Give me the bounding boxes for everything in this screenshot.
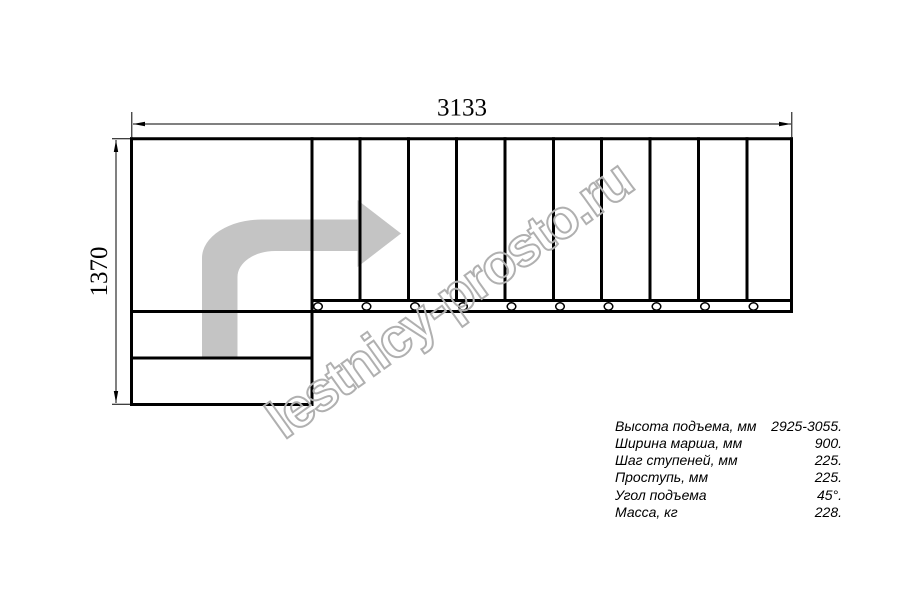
svg-text:1370: 1370 — [86, 247, 113, 297]
svg-text:3133: 3133 — [437, 95, 487, 122]
